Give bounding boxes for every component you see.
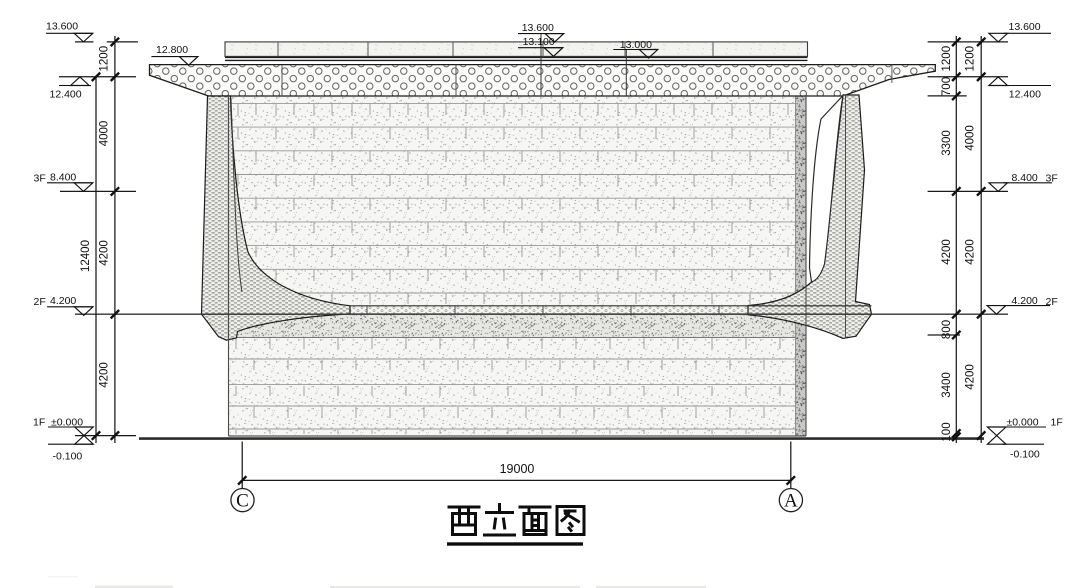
svg-text:2F: 2F [1046, 296, 1058, 308]
svg-text:4200: 4200 [965, 239, 977, 265]
svg-text:4200: 4200 [965, 364, 977, 390]
svg-text:700: 700 [941, 77, 953, 96]
svg-text:±0.000: ±0.000 [1007, 417, 1039, 429]
svg-text:12.400: 12.400 [1009, 89, 1041, 101]
svg-text:13.100: 13.100 [523, 36, 555, 48]
svg-text:4000: 4000 [965, 125, 977, 151]
svg-text:±0.000: ±0.000 [51, 417, 83, 429]
svg-text:8.400: 8.400 [1012, 172, 1038, 184]
svg-text:-0.100: -0.100 [53, 451, 83, 463]
svg-text:3400: 3400 [941, 372, 953, 398]
svg-text:12.800: 12.800 [156, 44, 188, 56]
svg-text:1F: 1F [33, 417, 45, 429]
svg-text:12.400: 12.400 [50, 89, 82, 101]
svg-text:100: 100 [941, 422, 953, 441]
svg-text:3F: 3F [1046, 173, 1058, 185]
svg-text:13.600: 13.600 [1009, 21, 1041, 33]
svg-text:4200: 4200 [99, 240, 111, 266]
svg-text:3300: 3300 [941, 130, 953, 156]
svg-text:1200: 1200 [941, 46, 953, 72]
svg-text:C: C [236, 491, 249, 512]
svg-text:13.600: 13.600 [522, 22, 554, 34]
svg-text:4.200: 4.200 [50, 295, 76, 307]
svg-text:800: 800 [941, 320, 953, 339]
svg-text:4000: 4000 [99, 121, 111, 147]
svg-text:-0.100: -0.100 [1010, 449, 1040, 461]
svg-text:13.000: 13.000 [620, 39, 652, 51]
svg-text:12400: 12400 [80, 240, 92, 272]
svg-text:1F: 1F [1051, 417, 1063, 429]
svg-text:A: A [784, 491, 798, 512]
svg-text:1200: 1200 [99, 46, 111, 72]
svg-text:8.400: 8.400 [50, 172, 76, 184]
svg-text:4200: 4200 [99, 362, 111, 388]
svg-text:2F: 2F [34, 296, 46, 308]
svg-text:19000: 19000 [500, 462, 535, 476]
svg-text:4.200: 4.200 [1012, 295, 1038, 307]
svg-text:1200: 1200 [965, 46, 977, 72]
svg-text:4200: 4200 [941, 239, 953, 265]
svg-text:3F: 3F [34, 173, 46, 185]
svg-text:13.600: 13.600 [46, 21, 78, 33]
